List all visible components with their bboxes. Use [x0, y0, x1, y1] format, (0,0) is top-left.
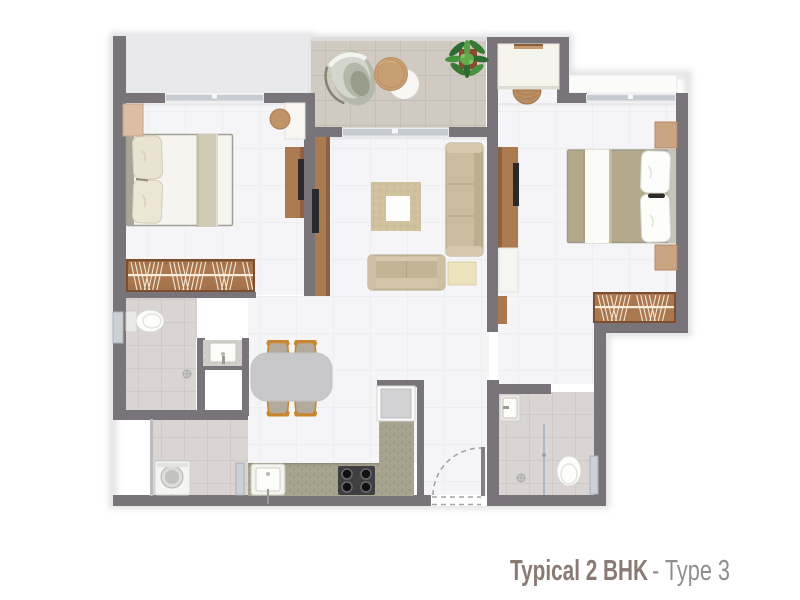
- svg-text:- Type 3: - Type 3: [652, 555, 730, 587]
- svg-text:Typical 2 BHK: Typical 2 BHK: [510, 555, 648, 587]
